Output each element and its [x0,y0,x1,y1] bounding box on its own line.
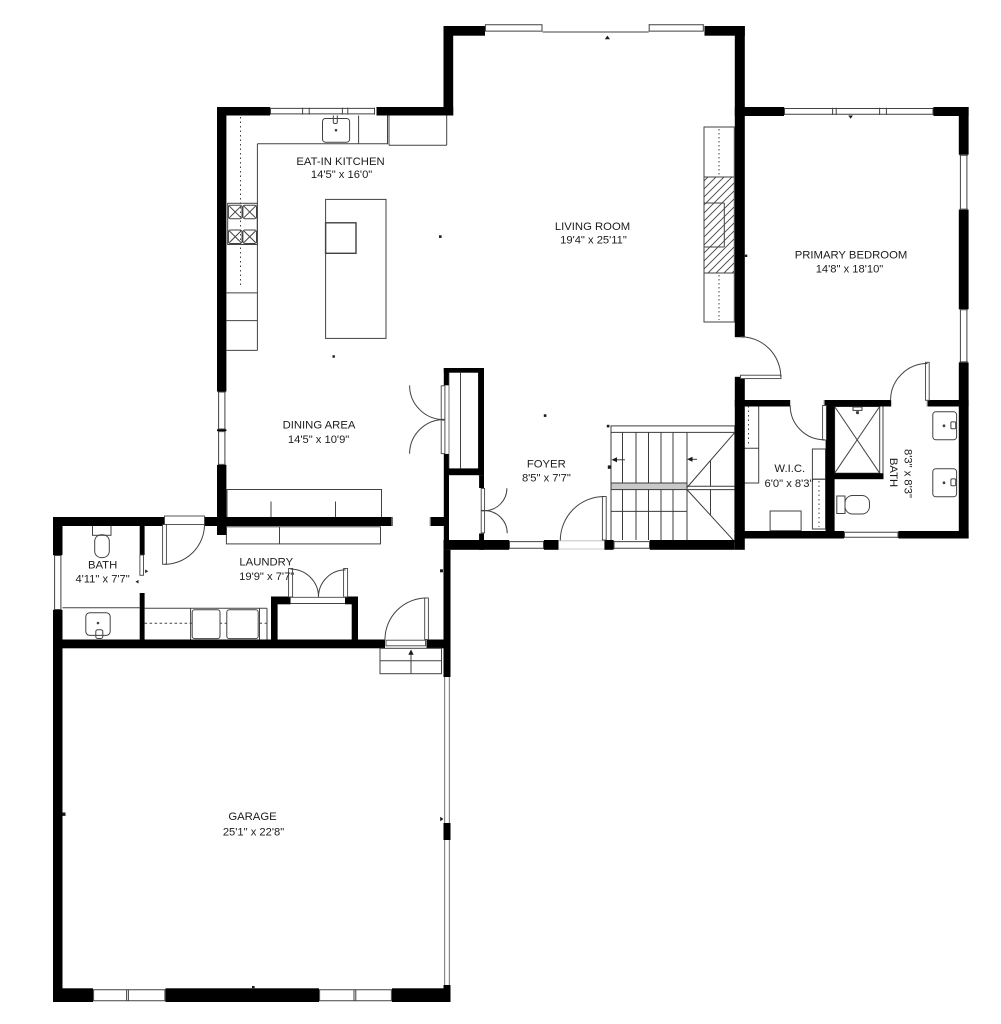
svg-text:FOYER: FOYER [527,459,566,471]
svg-text:EAT-IN KITCHEN: EAT-IN KITCHEN [296,156,384,168]
svg-text:4'11" x 7'7": 4'11" x 7'7" [75,574,129,586]
svg-text:14'5" x 10'9": 14'5" x 10'9" [288,434,349,446]
svg-text:LIVING ROOM: LIVING ROOM [555,221,630,233]
svg-text:6'0" x 8'3": 6'0" x 8'3" [765,478,814,490]
svg-text:W.I.C.: W.I.C. [774,463,805,475]
svg-text:BATH: BATH [88,559,117,571]
svg-text:BATH: BATH [887,458,899,487]
svg-text:8'5" x 7'7": 8'5" x 7'7" [522,473,571,485]
svg-text:14'8" x 18'10": 14'8" x 18'10" [816,264,884,276]
svg-text:GARAGE: GARAGE [228,811,277,823]
svg-text:19'4" x 25'11": 19'4" x 25'11" [560,235,627,247]
svg-text:DINING AREA: DINING AREA [283,420,356,432]
svg-text:19'9" x 7'7": 19'9" x 7'7" [239,571,294,583]
svg-text:14'5" x 16'0": 14'5" x 16'0" [311,169,372,181]
svg-text:8'3" x 8'3": 8'3" x 8'3" [901,449,913,498]
svg-text:PRIMARY BEDROOM: PRIMARY BEDROOM [795,250,908,262]
svg-text:25'1" x 22'8": 25'1" x 22'8" [223,827,284,839]
svg-text:LAUNDRY: LAUNDRY [239,557,293,569]
